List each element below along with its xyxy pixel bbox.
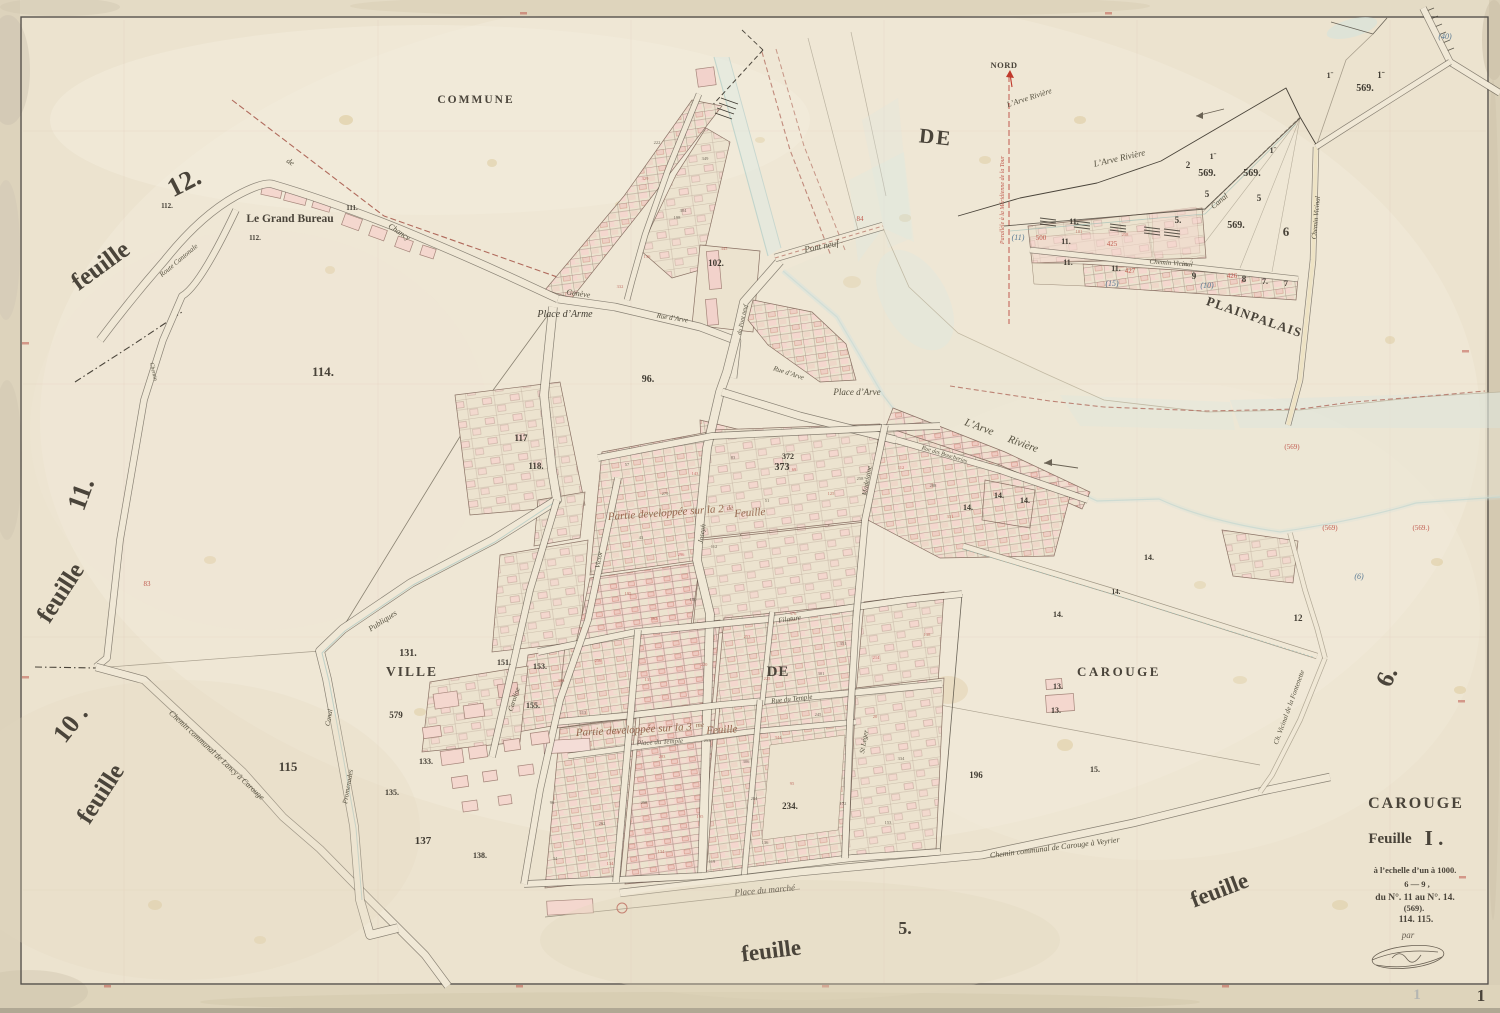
svg-text:306: 306 xyxy=(743,759,751,764)
svg-text:111.: 111. xyxy=(346,204,358,212)
svg-text:11.: 11. xyxy=(1069,217,1079,226)
svg-text:334: 334 xyxy=(898,756,906,761)
svg-text:83: 83 xyxy=(144,580,152,588)
svg-text:384: 384 xyxy=(680,208,688,213)
svg-text:386: 386 xyxy=(558,678,566,683)
svg-text:114. 115.: 114. 115. xyxy=(1399,915,1434,925)
svg-text:(569).: (569). xyxy=(1404,903,1425,913)
svg-text:83: 83 xyxy=(731,455,736,460)
svg-text:151.: 151. xyxy=(497,658,511,667)
svg-text:13.: 13. xyxy=(1051,706,1061,715)
svg-text:15.: 15. xyxy=(1090,765,1100,774)
svg-text:172: 172 xyxy=(840,801,847,806)
svg-text:131.: 131. xyxy=(399,648,417,659)
svg-text:Place d’Arve: Place d’Arve xyxy=(832,387,880,397)
svg-text:Feuille: Feuille xyxy=(1368,831,1412,847)
svg-text:95: 95 xyxy=(790,781,795,786)
svg-text:569.: 569. xyxy=(1198,168,1216,179)
svg-text:253: 253 xyxy=(744,634,752,639)
svg-text:CAROUGE: CAROUGE xyxy=(1368,795,1464,812)
svg-text:de: de xyxy=(726,504,733,512)
svg-text:349: 349 xyxy=(702,156,710,161)
svg-text:198: 198 xyxy=(674,215,682,220)
svg-text:344: 344 xyxy=(775,735,783,740)
svg-text:283: 283 xyxy=(659,754,667,759)
svg-text:12: 12 xyxy=(1294,613,1304,623)
svg-text:5.: 5. xyxy=(1175,215,1182,225)
svg-text:14.: 14. xyxy=(1112,588,1121,596)
svg-text:569.: 569. xyxy=(1227,220,1245,231)
svg-text:112.: 112. xyxy=(249,234,261,242)
svg-text:CAROUGE: CAROUGE xyxy=(1077,664,1161,679)
svg-text:134: 134 xyxy=(607,861,615,866)
svg-text:569.: 569. xyxy=(1356,83,1374,94)
svg-text:13.: 13. xyxy=(1053,682,1063,691)
svg-text:14.: 14. xyxy=(994,491,1004,500)
svg-text:(10): (10) xyxy=(1200,281,1214,290)
svg-text:500: 500 xyxy=(1036,234,1047,242)
svg-text:579: 579 xyxy=(389,710,403,720)
svg-text:Parallèle à la Méridienne de l: Parallèle à la Méridienne de la Tour xyxy=(1000,155,1006,245)
svg-text:118.: 118. xyxy=(528,461,543,471)
svg-text:112.: 112. xyxy=(161,202,173,210)
svg-text:138.: 138. xyxy=(473,851,487,860)
svg-text:329: 329 xyxy=(642,176,650,181)
svg-text:220: 220 xyxy=(701,662,709,667)
svg-text:351: 351 xyxy=(840,641,847,646)
svg-text:1: 1 xyxy=(1413,987,1421,1003)
svg-text:8: 8 xyxy=(1242,274,1247,284)
svg-text:VILLE: VILLE xyxy=(386,664,438,679)
svg-text:34: 34 xyxy=(553,856,558,861)
svg-text:373: 373 xyxy=(775,462,790,473)
svg-text:Le Grand Bureau: Le Grand Bureau xyxy=(246,213,334,225)
svg-text:155.: 155. xyxy=(526,701,540,710)
svg-text:331: 331 xyxy=(947,514,954,519)
svg-text:234.: 234. xyxy=(782,801,798,811)
svg-text:1ˉ: 1ˉ xyxy=(1377,70,1385,80)
svg-text:256: 256 xyxy=(595,658,603,663)
svg-text:425: 425 xyxy=(1107,240,1118,248)
svg-text:195: 195 xyxy=(697,814,705,819)
svg-text:2: 2 xyxy=(1186,160,1191,170)
svg-text:245: 245 xyxy=(815,712,823,717)
svg-text:136: 136 xyxy=(644,254,652,259)
svg-text:279: 279 xyxy=(662,491,670,496)
svg-text:113: 113 xyxy=(580,710,587,715)
svg-text:(6): (6) xyxy=(1354,572,1364,581)
svg-text:426: 426 xyxy=(1227,272,1238,280)
svg-text:135.: 135. xyxy=(385,788,399,797)
svg-text:138: 138 xyxy=(924,632,932,637)
svg-text:1ˉ: 1ˉ xyxy=(1270,146,1277,155)
svg-text:(40): (40) xyxy=(1438,32,1452,41)
svg-text:362: 362 xyxy=(651,616,658,621)
svg-text:69: 69 xyxy=(792,467,797,472)
svg-text:I .: I . xyxy=(1425,826,1444,850)
svg-text:6: 6 xyxy=(1283,224,1290,239)
svg-text:153: 153 xyxy=(885,820,893,825)
svg-text:5: 5 xyxy=(1205,189,1210,199)
svg-text:DE: DE xyxy=(918,123,954,150)
svg-text:214: 214 xyxy=(873,655,881,660)
svg-text:1ˉ: 1ˉ xyxy=(1327,71,1334,80)
svg-text:Place d’Arme: Place d’Arme xyxy=(536,309,593,320)
svg-text:288: 288 xyxy=(930,483,938,488)
svg-text:262: 262 xyxy=(599,821,606,826)
svg-text:196: 196 xyxy=(969,770,983,780)
svg-text:372: 372 xyxy=(782,452,794,461)
svg-text:7: 7 xyxy=(1284,279,1288,288)
svg-text:(15): (15) xyxy=(1105,279,1119,288)
svg-text:14.: 14. xyxy=(1144,553,1154,562)
svg-text:137: 137 xyxy=(415,835,432,847)
svg-text:14.: 14. xyxy=(963,503,973,512)
svg-text:7.: 7. xyxy=(1262,277,1268,286)
svg-text:112: 112 xyxy=(711,544,718,549)
svg-text:180: 180 xyxy=(690,597,698,602)
svg-text:(569): (569) xyxy=(1284,443,1300,451)
svg-text:114.: 114. xyxy=(312,364,334,379)
svg-text:345: 345 xyxy=(721,246,729,251)
svg-text:6 — 9 ,: 6 — 9 , xyxy=(1404,879,1430,889)
svg-text:par: par xyxy=(1401,930,1415,940)
svg-text:569.: 569. xyxy=(1243,168,1261,179)
svg-text:(569.): (569.) xyxy=(1413,524,1431,532)
svg-text:9: 9 xyxy=(1192,271,1197,281)
svg-text:119: 119 xyxy=(709,859,716,864)
svg-text:133.: 133. xyxy=(419,757,433,766)
svg-text:Feuille: Feuille xyxy=(705,723,738,737)
svg-text:153.: 153. xyxy=(533,662,547,671)
svg-text:11.: 11. xyxy=(1111,264,1121,273)
svg-text:à l’echelle d’un à 1000.: à l’echelle d’un à 1000. xyxy=(1374,865,1457,875)
svg-text:11.: 11. xyxy=(1063,258,1073,267)
svg-text:84: 84 xyxy=(857,215,865,223)
svg-text:du N°. 11 au N°. 14.: du N°. 11 au N°. 14. xyxy=(1375,892,1454,903)
svg-text:296: 296 xyxy=(678,552,686,557)
svg-text:125: 125 xyxy=(828,491,836,496)
svg-text:me: me xyxy=(696,721,705,729)
svg-text:115: 115 xyxy=(279,759,298,774)
svg-text:195: 195 xyxy=(625,591,633,596)
svg-text:253: 253 xyxy=(704,738,712,743)
svg-text:(11): (11) xyxy=(1012,233,1025,242)
svg-text:57: 57 xyxy=(625,462,630,467)
svg-text:134: 134 xyxy=(658,849,666,854)
svg-text:5: 5 xyxy=(1257,193,1262,203)
svg-text:101: 101 xyxy=(1076,229,1083,234)
svg-text:DE: DE xyxy=(767,664,790,680)
svg-text:222: 222 xyxy=(654,140,661,145)
svg-text:11.: 11. xyxy=(1061,237,1071,246)
svg-text:96.: 96. xyxy=(642,374,655,385)
svg-text:102.: 102. xyxy=(708,258,724,268)
svg-text:20: 20 xyxy=(873,714,878,719)
svg-text:143: 143 xyxy=(692,471,700,476)
svg-text:258: 258 xyxy=(641,800,649,805)
svg-text:43: 43 xyxy=(639,535,644,540)
svg-text:1ˉ: 1ˉ xyxy=(1210,152,1217,161)
svg-text:14.: 14. xyxy=(1020,496,1030,505)
svg-text:427: 427 xyxy=(1125,267,1136,275)
svg-text:NORD: NORD xyxy=(990,60,1017,70)
svg-text:(569): (569) xyxy=(1322,524,1338,532)
svg-text:332: 332 xyxy=(617,284,624,289)
svg-text:96: 96 xyxy=(550,800,555,805)
svg-text:131: 131 xyxy=(645,677,652,682)
svg-text:COMMUNE: COMMUNE xyxy=(437,94,514,106)
svg-text:51: 51 xyxy=(765,498,770,503)
svg-text:301: 301 xyxy=(818,671,825,676)
svg-text:117: 117 xyxy=(514,433,528,443)
svg-text:Feuille: Feuille xyxy=(733,506,766,520)
svg-text:136: 136 xyxy=(762,840,770,845)
svg-text:5.: 5. xyxy=(898,918,912,938)
svg-text:1: 1 xyxy=(1477,986,1486,1005)
svg-text:14.: 14. xyxy=(1053,610,1063,619)
svg-text:112: 112 xyxy=(898,465,905,470)
svg-text:284: 284 xyxy=(751,796,759,801)
svg-text:258: 258 xyxy=(1122,232,1130,237)
